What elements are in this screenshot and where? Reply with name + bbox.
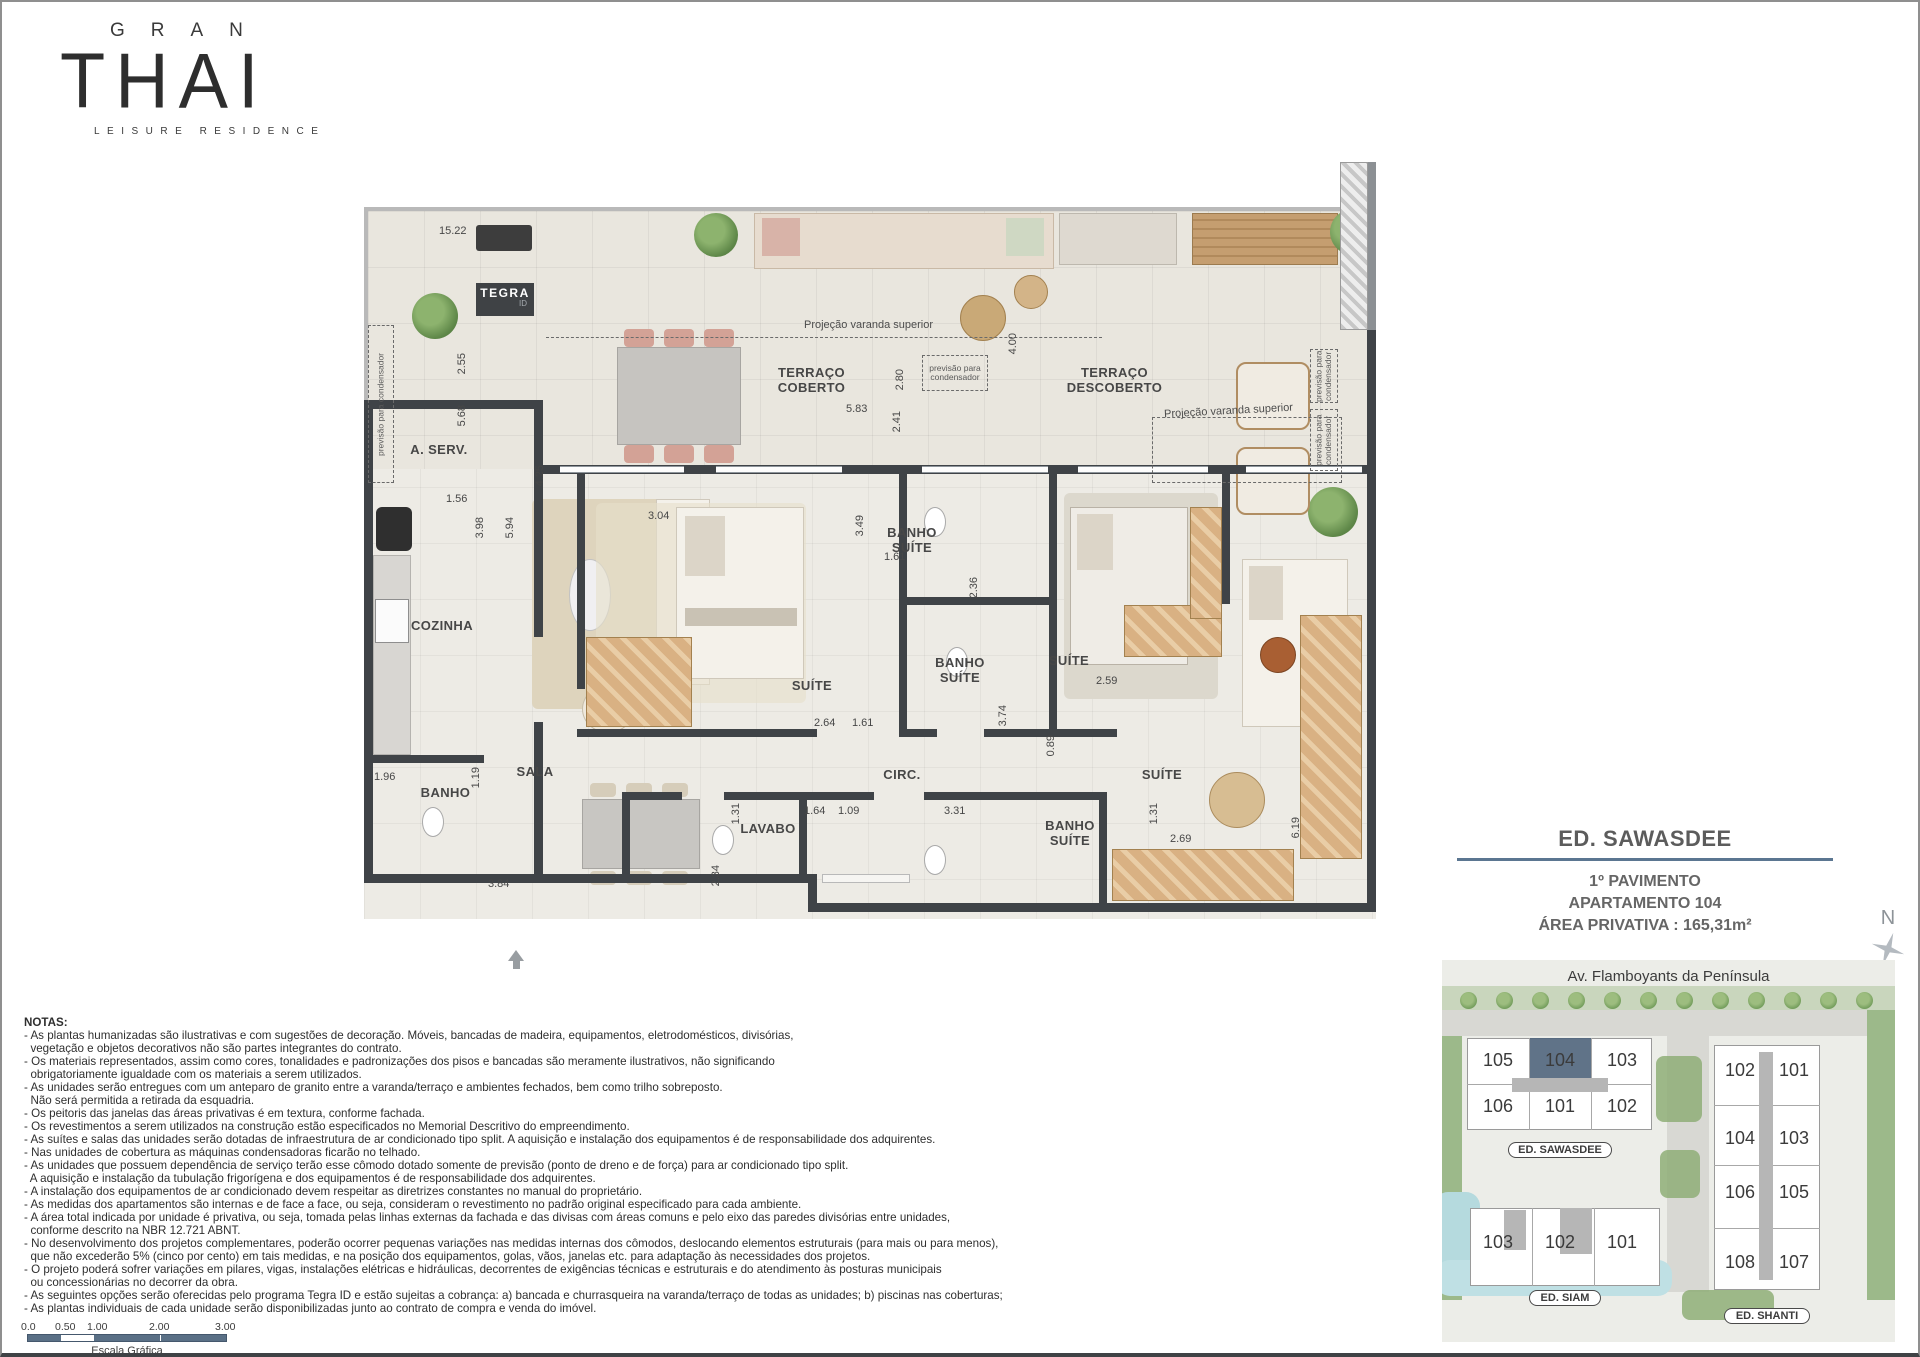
wall: [907, 597, 1057, 605]
wall: [1367, 327, 1376, 912]
room-label-sala: SALA: [514, 764, 556, 779]
tree-icon: [1604, 992, 1621, 1009]
desk-chair: [1260, 637, 1296, 673]
unit-number: 105: [1766, 1182, 1822, 1203]
scale-caption: Escala Gráfica: [27, 1345, 227, 1357]
wall: [924, 792, 1107, 800]
note-line: ou concessionárias no decorrer da obra.: [24, 1276, 1204, 1289]
dim-label: 15.22: [439, 225, 467, 237]
wall: [577, 729, 817, 737]
scale-tick-labels: 0.0 0.50 1.00 2.00 3.00: [27, 1321, 267, 1333]
wall: [1222, 474, 1230, 604]
dim-label: 2.59: [1096, 675, 1117, 687]
dim-label: 1.64: [804, 805, 825, 817]
dim-label: 3.31: [944, 805, 965, 817]
shared-wall-hatch: [1340, 162, 1368, 330]
dining-chair: [664, 445, 694, 463]
note-line: - As medidas dos apartamentos são intern…: [24, 1198, 1204, 1211]
entry-door: [822, 874, 910, 883]
note-line: - As unidades serão entregues com um ant…: [24, 1081, 1204, 1094]
note-line: obrigatoriamente igualdade com os materi…: [24, 1068, 1204, 1081]
room-label-a-serv: A. SERV.: [404, 442, 474, 457]
site-map: Av. Flamboyants da Península 105 104 103…: [1442, 960, 1895, 1342]
plant: [1308, 487, 1358, 537]
garden: [1656, 1056, 1702, 1122]
dining-chair: [664, 329, 694, 347]
north-arrow-icon: [507, 950, 525, 969]
wood-deck: [1192, 213, 1338, 265]
kitchen-counter: [373, 555, 411, 755]
dim-label: 0.89: [1045, 735, 1057, 756]
unit-number: 101: [1532, 1096, 1588, 1117]
unit-number: 102: [1594, 1096, 1650, 1117]
building-core: [1759, 1052, 1773, 1280]
dining-chair: [704, 329, 734, 347]
sofa-pillow: [1006, 218, 1044, 256]
private-area-label: ÁREA PRIVATIVA : 165,31m²: [1457, 915, 1833, 937]
room-label-banho-suite-2: BANHO SUÍTE: [932, 655, 988, 685]
dining-chair: [624, 329, 654, 347]
note-line: - Os materiais representados, assim como…: [24, 1055, 1204, 1068]
dim-label: 3.74: [997, 705, 1009, 726]
plant: [412, 293, 458, 339]
dim-label: 1.96: [374, 771, 395, 783]
room-label-suite-3: SUÍTE: [1138, 767, 1186, 782]
dim-label: 4.00: [1007, 333, 1019, 354]
window: [922, 466, 1048, 473]
tegra-id-label: ID: [476, 299, 534, 308]
suite3-pouf: [1209, 772, 1265, 828]
scale-segment: [94, 1335, 160, 1341]
tree-icon: [1820, 992, 1837, 1009]
unit-number: 103: [1470, 1232, 1526, 1253]
green-strip: [1867, 1010, 1895, 1300]
unit-number: 104: [1532, 1050, 1588, 1071]
note-line: - O projeto poderá sofrer variações em p…: [24, 1263, 1204, 1276]
sala-dining-table: [582, 799, 700, 869]
note-line: Não será permitida a retirada da esquadr…: [24, 1094, 1204, 1107]
logo-subtitle: LEISURE RESIDENCE: [52, 126, 332, 137]
room-label-lavabo: LAVABO: [740, 821, 796, 836]
toilet: [422, 807, 444, 837]
compass-rose: N: [1858, 907, 1918, 966]
dining-chair: [624, 445, 654, 463]
condenser-box: previsão para condensador: [1310, 349, 1338, 403]
window: [560, 466, 684, 473]
tree-icon: [1460, 992, 1477, 1009]
room-label-banho-suite-3: BANHO SUÍTE: [1042, 818, 1098, 848]
unit-number: 105: [1470, 1050, 1526, 1071]
apartment-label: APARTAMENTO 104: [1457, 893, 1833, 915]
tree-icon: [1748, 992, 1765, 1009]
side-table: [960, 295, 1006, 341]
wall: [1049, 474, 1057, 737]
wall: [1057, 729, 1117, 737]
wall: [577, 474, 585, 689]
room-label-cozinha: COZINHA: [406, 618, 478, 633]
dim-label: 1.09: [838, 805, 859, 817]
note-line: - As unidades que possuem dependência de…: [24, 1159, 1204, 1172]
sala-dining-chair: [590, 783, 616, 797]
toilet: [924, 845, 946, 875]
toilet: [712, 825, 734, 855]
suite1-wardrobe: [586, 637, 692, 727]
graphic-scale: 0.0 0.50 1.00 2.00 3.00 Escala Gráfica: [27, 1321, 267, 1357]
note-line: - As seguintes opções serão oferecidas p…: [24, 1289, 1204, 1302]
unit-number: 103: [1766, 1128, 1822, 1149]
street-name: Av. Flamboyants da Península: [1442, 968, 1895, 985]
note-line: - Nas unidades de cobertura as máquinas …: [24, 1146, 1204, 1159]
note-line: - As plantas humanizadas são ilustrativa…: [24, 1029, 1204, 1042]
wall: [622, 792, 682, 800]
notes-title: NOTAS:: [24, 1016, 1204, 1029]
room-label-terraco-descoberto: TERRAÇO DESCOBERTO: [1052, 365, 1177, 395]
dim-label: 6.19: [1290, 817, 1302, 838]
tegra-label: TEGRA: [476, 288, 534, 299]
wall: [534, 722, 543, 882]
note-line: conforme descrito na NBR 12.721 ABNT.: [24, 1224, 1204, 1237]
condenser-box: previsão para condensador: [922, 355, 988, 391]
room-label-circ: CIRC.: [878, 767, 926, 782]
side-table: [1014, 275, 1048, 309]
window: [716, 466, 842, 473]
note-line: - As suítes e salas das unidades serão d…: [24, 1133, 1204, 1146]
dining-chair: [704, 445, 734, 463]
brochure-page: GRAN THAI LEISURE RESIDENCE: [0, 0, 1920, 1357]
dim-label: 1.19: [470, 767, 482, 788]
gran-thai-logo: GRAN THAI LEISURE RESIDENCE: [52, 20, 332, 137]
note-line: - A área total indicada por unidade é pr…: [24, 1211, 1204, 1224]
wall: [364, 755, 484, 763]
suite3-wardrobe: [1112, 849, 1294, 901]
logo-thai: THAI: [52, 40, 332, 122]
unit-number: 106: [1470, 1096, 1526, 1117]
condenser-box: previsão para condensador: [368, 325, 394, 483]
suite3-wardrobe: [1300, 615, 1362, 859]
scale-segment: [28, 1335, 61, 1341]
floor-label: 1º PAVIMENTO: [1457, 871, 1833, 893]
projection-label: Projeção varanda superior: [804, 319, 933, 331]
dining-table: [617, 347, 741, 445]
room-label-suite-1: SUÍTE: [788, 678, 836, 693]
unit-number: 102: [1532, 1232, 1588, 1253]
building-core: [1512, 1078, 1608, 1092]
unit-info-panel: ED. SAWASDEE 1º PAVIMENTO APARTAMENTO 10…: [1457, 826, 1833, 937]
note-line: - No desenvolvimento dos projetos comple…: [24, 1237, 1204, 1250]
room-label-terraco-coberto: TERRAÇO COBERTO: [764, 365, 859, 395]
unit-number: 104: [1712, 1128, 1768, 1149]
stove: [375, 599, 409, 643]
cooktop: [476, 225, 532, 251]
note-line: - Os revestimentos a serem utilizados na…: [24, 1120, 1204, 1133]
washer: [376, 507, 412, 551]
note-line: A aquisição e instalação da tubulação fr…: [24, 1172, 1204, 1185]
garden: [1660, 1150, 1700, 1198]
building-label-sawasdee: ED. SAWASDEE: [1508, 1142, 1612, 1158]
scale-tick: 3.00: [215, 1321, 235, 1333]
dim-label: 5.94: [504, 517, 516, 538]
tree-icon: [1496, 992, 1513, 1009]
dim-label: 5.68: [456, 405, 468, 426]
wall: [1099, 792, 1107, 912]
floor-plan: Projeção varanda superior Projeção varan…: [364, 207, 1376, 919]
plant: [694, 213, 738, 257]
dim-label: 3.98: [474, 517, 486, 538]
room-label-suite-2: SUÍTE: [1045, 653, 1093, 668]
dim-label: 5.83: [846, 403, 867, 415]
building-label-siam: ED. SIAM: [1529, 1290, 1601, 1306]
dim-label: 2.41: [891, 411, 903, 432]
wall: [534, 400, 543, 637]
tree-icon: [1676, 992, 1693, 1009]
note-line: vegetação e objetos decorativos não são …: [24, 1042, 1204, 1055]
unit-number: 103: [1594, 1050, 1650, 1071]
note-line: - As plantas individuais de cada unidade…: [24, 1302, 1204, 1315]
scale-tick: 1.00: [87, 1321, 107, 1333]
scale-bar: [27, 1334, 227, 1342]
tree-icon: [1532, 992, 1549, 1009]
dim-label: 1.61: [884, 551, 905, 563]
unit-number: 107: [1766, 1252, 1822, 1273]
dim-label: 2.80: [894, 369, 906, 390]
compass-north-label: N: [1858, 907, 1918, 930]
dim-label: 3.84: [488, 878, 509, 890]
suite2-wardrobe: [1190, 507, 1222, 619]
unit-number: 101: [1594, 1232, 1650, 1253]
dim-label: 1.31: [730, 803, 742, 824]
note-line: que não excederão 5% (cinco por cento) e…: [24, 1250, 1204, 1263]
unit-number: 106: [1712, 1182, 1768, 1203]
title-underline: [1457, 858, 1833, 861]
dim-label: 2.55: [456, 353, 468, 374]
scale-segment: [161, 1335, 226, 1341]
dim-label: 2.64: [814, 717, 835, 729]
scale-tick: 0.50: [55, 1321, 75, 1333]
scale-tick: 2.00: [149, 1321, 169, 1333]
tree-icon: [1640, 992, 1657, 1009]
wall: [808, 903, 1376, 912]
dim-label: 1.61: [852, 717, 873, 729]
dim-label: 4.25: [534, 465, 546, 486]
wall: [899, 474, 907, 737]
building-title: ED. SAWASDEE: [1457, 826, 1833, 852]
dim-label: 2.36: [968, 577, 980, 598]
unit-number: 102: [1712, 1060, 1768, 1081]
dim-label: 3.04: [648, 510, 669, 522]
tree-icon: [1712, 992, 1729, 1009]
scale-tick: 0.0: [21, 1321, 36, 1333]
sofa-pillow: [762, 218, 800, 256]
wall: [364, 874, 816, 883]
room-label-banho: BANHO: [418, 785, 473, 800]
suite1-bed: [676, 507, 804, 679]
tree-icon: [1784, 992, 1801, 1009]
notes-block: NOTAS: - As plantas humanizadas são ilus…: [24, 1016, 1204, 1315]
dim-label: 2.69: [1170, 833, 1191, 845]
note-line: - Os peitoris das janelas das áreas priv…: [24, 1107, 1204, 1120]
dim-label: 1.56: [446, 493, 467, 505]
condenser-box: previsão para condensador: [1310, 409, 1338, 471]
dim-label: 3.49: [854, 515, 866, 536]
tegra-id-badge: TEGRA ID: [476, 283, 534, 316]
dim-label: 1.31: [1148, 803, 1160, 824]
wall: [907, 729, 937, 737]
tree-icon: [1568, 992, 1585, 1009]
unit-number: 101: [1766, 1060, 1822, 1081]
building-label-shanti: ED. SHANTI: [1724, 1308, 1810, 1324]
wall: [622, 792, 630, 877]
wall: [1368, 162, 1376, 330]
unit-number: 108: [1712, 1252, 1768, 1273]
tree-icon: [1856, 992, 1873, 1009]
dim-label: 2.34: [710, 865, 722, 886]
terrace-chaise: [1059, 213, 1177, 265]
note-line: - A instalação dos equipamentos de ar co…: [24, 1185, 1204, 1198]
